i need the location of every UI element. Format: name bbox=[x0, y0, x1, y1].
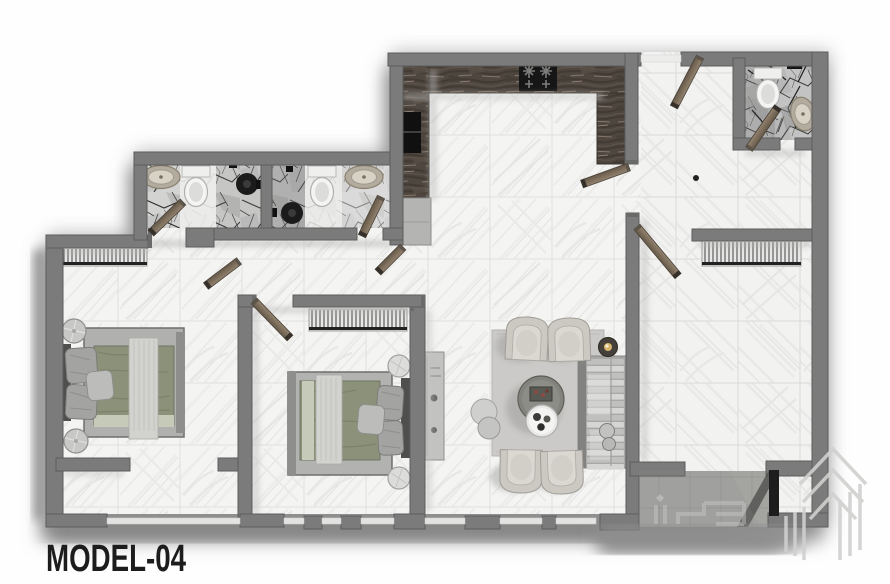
svg-text:MODEL-04: MODEL-04 bbox=[46, 538, 186, 580]
